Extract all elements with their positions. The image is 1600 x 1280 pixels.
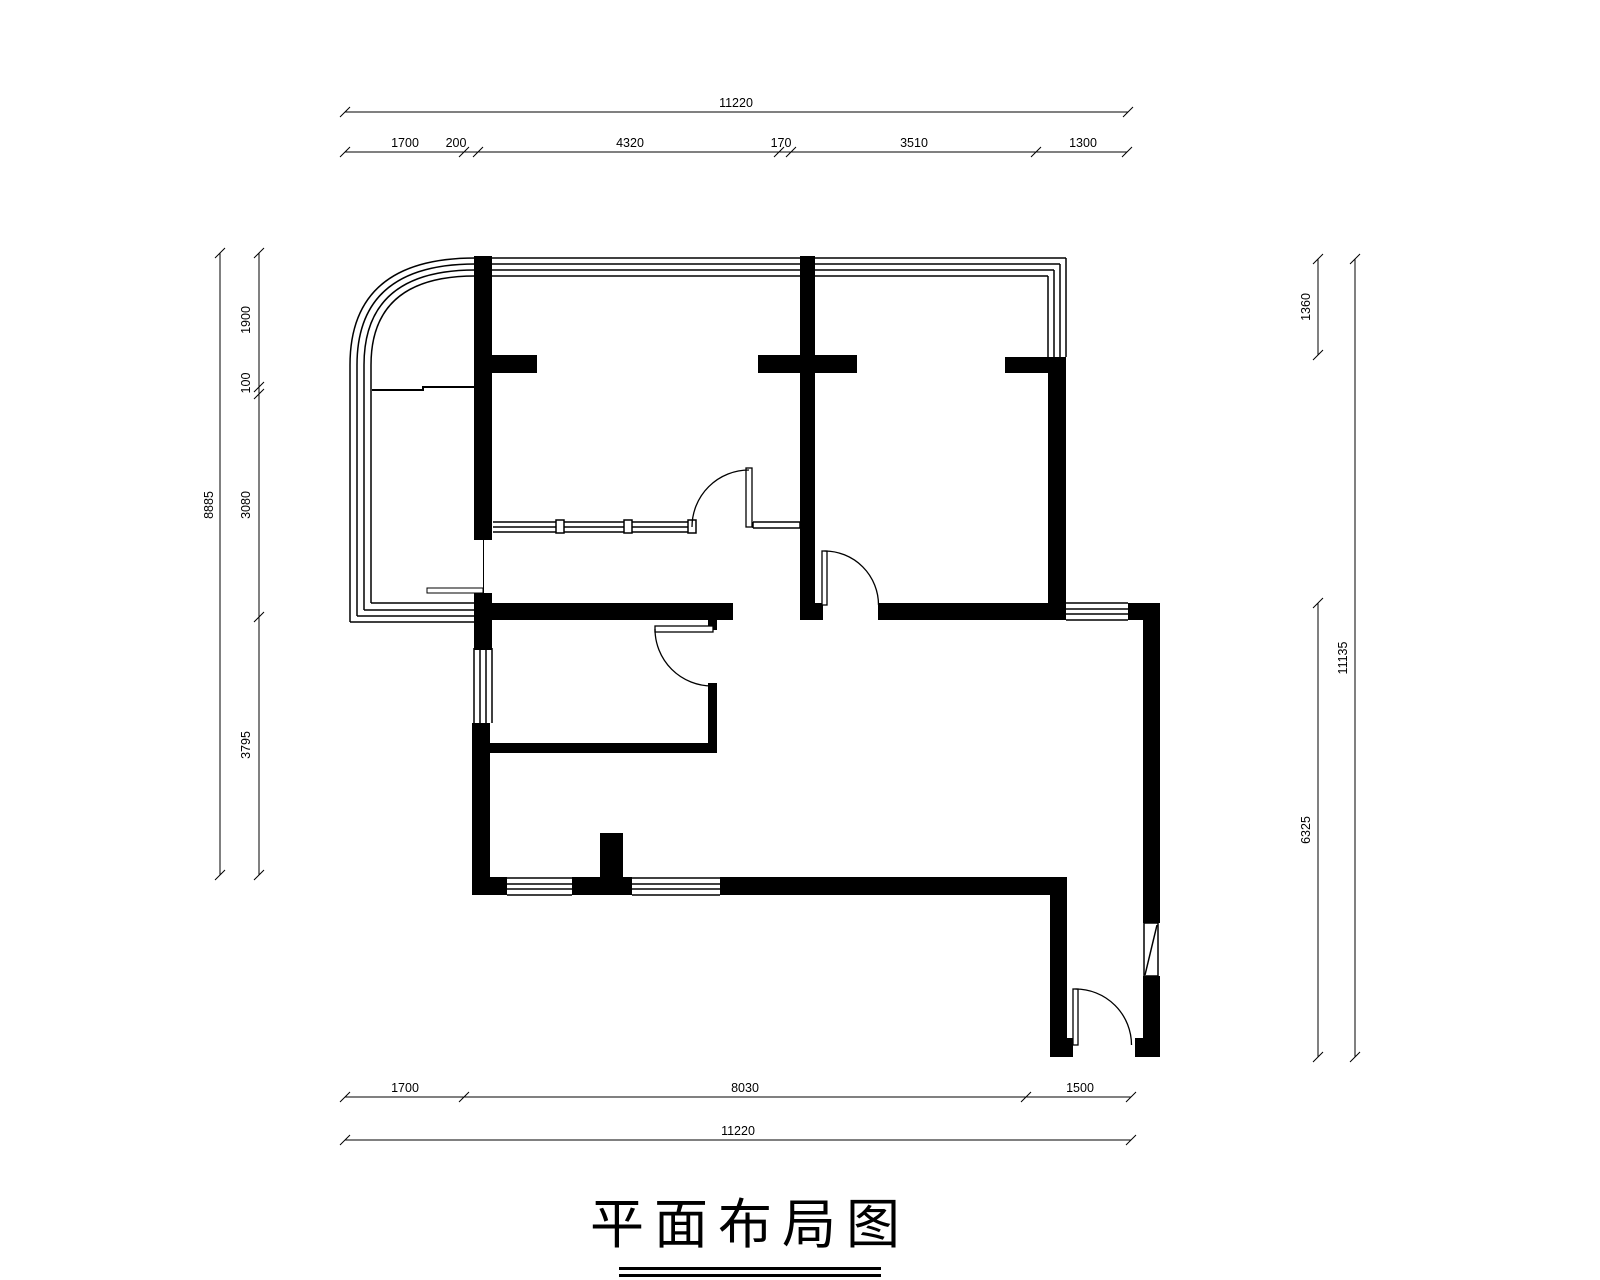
title-underline (619, 1267, 881, 1277)
floor-plan-sheet: 11220 1700 200 4320 170 3510 1300 8885 1… (0, 0, 1600, 1280)
window-bottom-2 (632, 878, 720, 895)
dim-top-seg-5: 1300 (1069, 136, 1097, 150)
wall-bathroom-top (476, 603, 733, 620)
dim-top-seg-0: 1700 (391, 136, 419, 150)
wall-middle (800, 256, 815, 620)
dim-left-seg-0: 1900 (239, 306, 253, 334)
wall-right-lower (1143, 976, 1160, 1057)
door-bathroom (655, 626, 713, 686)
dim-right-seg-0: 1360 (1299, 293, 1313, 321)
floor-plan-drawing: 11220 1700 200 4320 170 3510 1300 8885 1… (0, 0, 1600, 1280)
wall-right-upper (1143, 620, 1160, 923)
dim-bottom-seg-0: 1700 (391, 1081, 419, 1095)
window-bathroom-left (474, 648, 492, 723)
door-bedroom1 (692, 468, 752, 527)
wall-bottom-b (572, 877, 632, 895)
window-balcony-curve (350, 258, 475, 622)
dim-left-seg-2: 3080 (239, 491, 253, 519)
dim-bottom-total: 11220 (721, 1124, 755, 1138)
wall-left-block (474, 593, 492, 650)
dim-left-seg-3: 3795 (239, 731, 253, 759)
dim-left-total: 8885 (202, 491, 216, 519)
dimension-ticks (215, 107, 1360, 1145)
wall-stub-right (1005, 357, 1048, 373)
window-bottom-1 (507, 878, 572, 895)
wall-foyer-corner-left (1050, 1038, 1073, 1057)
balcony-sill (427, 588, 483, 593)
wall-right-corner-block (1128, 603, 1160, 620)
window-hall-partition (493, 520, 800, 533)
window-foyer-right (1144, 923, 1158, 976)
dim-right-total: 11135 (1336, 642, 1350, 675)
dimension-labels: 11220 1700 200 4320 170 3510 1300 8885 1… (202, 96, 1350, 1138)
dim-top-seg-1: 200 (446, 136, 467, 150)
window-living-right (1066, 603, 1128, 620)
wall-bedroom2-bottom (878, 603, 1066, 620)
window-top-band (475, 258, 1066, 357)
wall-kitchen-column (600, 833, 623, 878)
wall-bathroom-right (708, 683, 717, 753)
walls (472, 256, 1160, 1057)
dim-top-total: 11220 (719, 96, 753, 110)
wall-stub-bedroom1 (492, 355, 537, 373)
wall-bathroom-bottom (490, 743, 717, 753)
balcony-ledge-line (372, 387, 474, 390)
dim-bottom-seg-1: 8030 (731, 1081, 759, 1095)
wall-bedroom2-right (1048, 357, 1066, 603)
wall-bedroom1-left (474, 256, 492, 540)
dim-bottom-seg-2: 1500 (1066, 1081, 1094, 1095)
dim-left-seg-1: 100 (239, 373, 253, 394)
dim-top-seg-3: 170 (771, 136, 792, 150)
dim-top-seg-2: 4320 (616, 136, 644, 150)
wall-bedroom2-bottom-stub (800, 603, 823, 620)
dim-top-seg-4: 3510 (900, 136, 928, 150)
page-title: 平面布局图 (520, 1180, 980, 1259)
balcony-details (372, 387, 484, 593)
title-block: 平面布局图 (520, 1180, 980, 1277)
door-bedroom2 (822, 551, 879, 605)
door-entry (1073, 989, 1132, 1045)
dimension-lines (215, 107, 1360, 1145)
wall-bottom-c (720, 877, 1067, 895)
wall-bottom-a (472, 877, 507, 895)
wall-stub-middle (758, 355, 857, 373)
dim-right-seg-1: 6325 (1299, 816, 1313, 844)
wall-left-lower (472, 723, 490, 895)
wall-foyer-left (1050, 893, 1067, 1038)
